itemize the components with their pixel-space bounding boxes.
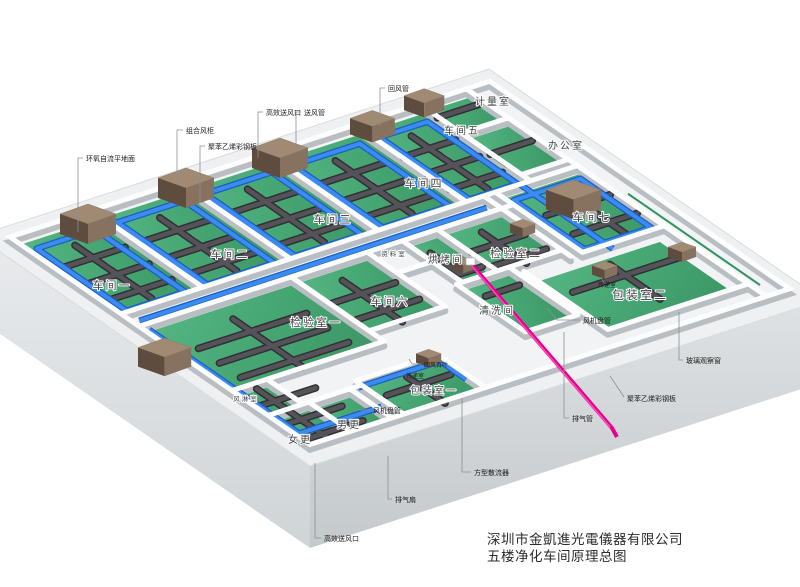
room-label: 男更: [337, 419, 361, 431]
room-label: 车间四: [405, 176, 444, 190]
room-label: 风淋室: [233, 394, 259, 403]
cleanroom-principle-diagram: 车间一车间二车间三车间四车间五计量室办公室车间七车间六检验室一资料室烘烤间检验室…: [0, 0, 800, 587]
callout-label: 高效送风口: [324, 534, 359, 543]
room-label: 计量室: [475, 95, 511, 108]
callout-label: 玻璃观察窗: [686, 356, 721, 365]
room-label: 车间七: [573, 210, 612, 224]
callout-label: 聚苯乙烯彩钢板: [208, 142, 257, 151]
callout-label: 聚苯乙烯彩钢板: [627, 394, 676, 403]
room-label: 办公室: [548, 139, 584, 152]
room-label: 清洗间: [479, 304, 515, 317]
callout-label: 传递室: [598, 281, 616, 289]
room-label: 车间一: [93, 278, 132, 292]
callout-label: 送风管: [304, 108, 325, 117]
isometric-scene: 车间一车间二车间三车间四车间五计量室办公室车间七车间六检验室一资料室烘烤间检验室…: [0, 0, 800, 587]
callout-label: 组合风柜: [186, 126, 214, 135]
room-label: 车间三: [314, 212, 353, 226]
callout-label: 回风百叶: [424, 361, 448, 369]
room-label: 烘烤间: [428, 253, 464, 266]
callout-label: 回风管: [388, 84, 409, 93]
callout-label: 环氧自流平地面: [86, 154, 135, 163]
title-block: 深圳市金凱進光電儀器有限公司 五楼净化车间原理总图: [487, 531, 787, 565]
room-label: 包装室二: [612, 287, 668, 302]
company-name: 深圳市金凱進光電儀器有限公司: [487, 531, 787, 548]
room-label: 包装室一: [410, 384, 458, 397]
callout-label: 排气管: [572, 414, 593, 423]
exhaust-inlet-box: [466, 258, 475, 265]
callout-label: 方型散流器: [474, 468, 509, 477]
callout-label: 排气扇: [395, 495, 416, 504]
callout-label: 风机盘管: [583, 316, 611, 325]
room-label: 女更: [288, 433, 312, 446]
room-label: 检验室一: [290, 315, 342, 329]
drawing-title: 五楼净化车间原理总图: [487, 548, 787, 565]
room-label: 车间五: [444, 124, 480, 137]
room-label: 检验室二: [490, 246, 542, 260]
room-label: 资料室: [381, 249, 407, 258]
callout-label: 风机盘管: [373, 406, 401, 415]
room-label: 车间六: [371, 294, 410, 308]
callout-label: 传递室: [406, 372, 424, 380]
room-label: 车间二: [211, 247, 250, 261]
